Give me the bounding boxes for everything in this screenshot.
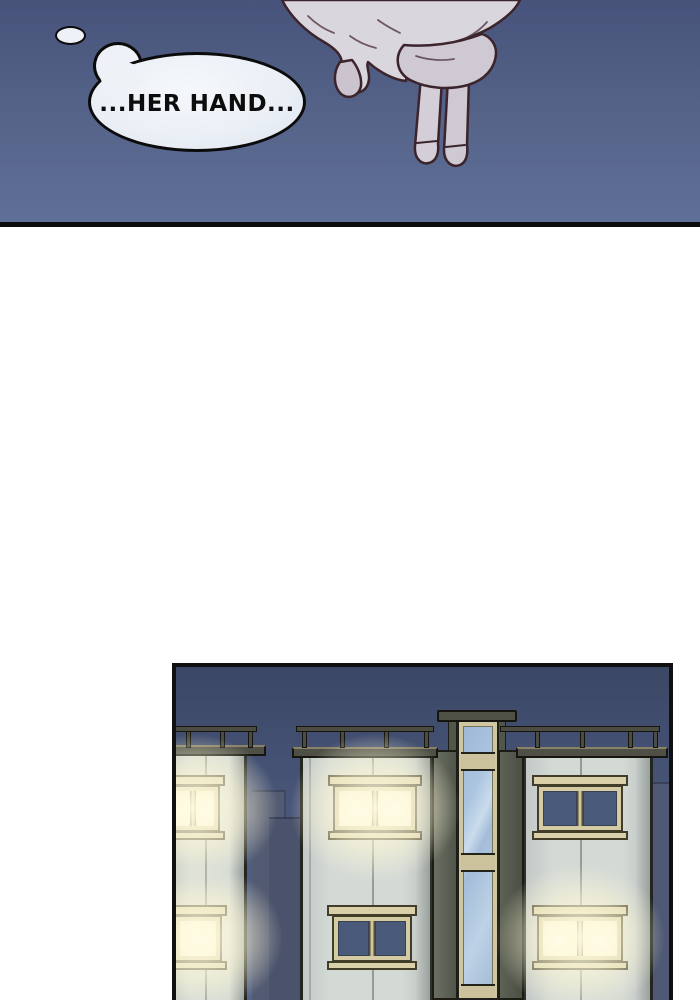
- window-sill: [327, 961, 417, 970]
- stairwell-cap: [437, 710, 517, 722]
- roof-slab: [516, 747, 668, 758]
- panel-gutter: [0, 227, 700, 663]
- railing-post: [628, 731, 633, 748]
- facade-shadow: [415, 751, 430, 1000]
- stairwell-post: [448, 720, 457, 752]
- thought-bubble-dot: [55, 26, 86, 45]
- facade-shadow: [635, 755, 650, 1000]
- window-sill: [328, 831, 422, 840]
- roof-slab: [292, 747, 438, 758]
- window-frame: [332, 915, 412, 962]
- window-sill: [532, 831, 628, 840]
- railing-post: [340, 731, 345, 748]
- window-pane: [583, 921, 617, 956]
- window-left-upper: [172, 775, 220, 840]
- thought-bubble-text: ...HER HAND...: [88, 52, 306, 152]
- window-pane: [196, 791, 214, 826]
- window-frame: [537, 785, 623, 832]
- window-right-lower: [537, 905, 623, 970]
- panel-night-buildings: [172, 663, 673, 1000]
- window-middle-lower: [332, 905, 412, 970]
- comic-page: ...HER HAND...: [0, 0, 700, 1000]
- window-pane: [339, 791, 372, 826]
- window-pane: [378, 791, 411, 826]
- facade-seam: [309, 751, 311, 1000]
- railing-post: [384, 731, 389, 748]
- window-middle-upper: [333, 775, 417, 840]
- window-sill: [172, 831, 225, 840]
- window-pane: [583, 791, 617, 826]
- window-sill: [172, 961, 227, 970]
- panel-hand-sky: ...HER HAND...: [0, 0, 700, 227]
- railing-post: [535, 731, 540, 748]
- roof-railing: [172, 726, 257, 732]
- window-pane: [543, 791, 577, 826]
- roof-railing: [296, 726, 434, 732]
- window-pane: [543, 921, 577, 956]
- stairwell-wall: [498, 750, 524, 1000]
- window-right-upper: [537, 775, 623, 840]
- railing-post: [302, 731, 307, 748]
- dangling-hand-illustration: [278, 0, 528, 178]
- stairwell-floor-band: [461, 752, 495, 771]
- railing-post: [580, 731, 585, 748]
- railing-post: [186, 731, 191, 748]
- railing-post: [248, 731, 253, 748]
- stairwell-floor-band: [461, 984, 495, 998]
- railing-post: [220, 731, 225, 748]
- window-sill: [532, 961, 628, 970]
- railing-post: [653, 731, 658, 748]
- window-frame: [174, 915, 222, 962]
- window-pane: [180, 921, 216, 956]
- window-pane: [375, 921, 406, 956]
- window-pane: [338, 921, 369, 956]
- stairwell-floor-band: [461, 853, 495, 872]
- window-frame: [333, 785, 417, 832]
- stairwell-wall: [432, 750, 458, 1000]
- window-pane: [172, 791, 190, 826]
- stairwell-glass-shaft: [457, 720, 499, 1000]
- window-frame: [537, 915, 623, 962]
- thought-bubble: ...HER HAND...: [88, 52, 306, 152]
- facade-shadow: [229, 751, 244, 1000]
- railing-post: [424, 731, 429, 748]
- window-frame: [172, 785, 220, 832]
- window-left-lower: [174, 905, 222, 970]
